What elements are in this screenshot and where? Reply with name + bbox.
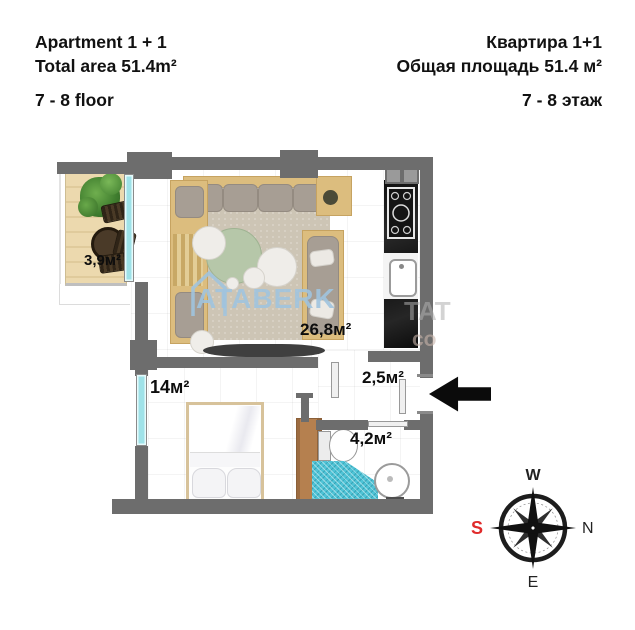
header-english: Apartment 1 + 1 Total area 51.4m² 7 - 8 … (35, 30, 177, 112)
apartment-title-en: Apartment 1 + 1 (35, 30, 177, 54)
bedroom-door-leaf (331, 362, 339, 398)
wall (280, 150, 318, 178)
floor-range-en: 7 - 8 floor (35, 88, 177, 112)
total-area-en: Total area 51.4m² (35, 54, 177, 78)
bed-pillow (192, 468, 226, 498)
tv-console (203, 344, 325, 357)
apartment-title-ru: Квартира 1+1 (397, 30, 603, 54)
sofa-cushion (175, 186, 204, 218)
wall (135, 282, 148, 342)
wall-post-cap (296, 393, 313, 398)
coffee-table-white (192, 226, 226, 260)
watermark-text: ATABERK (196, 283, 336, 315)
sink-drain (399, 264, 404, 269)
building-outline (59, 170, 61, 284)
table-plant (323, 190, 338, 205)
bedroom-window (136, 374, 147, 446)
sink-drain (387, 476, 393, 482)
bathroom-area-label: 4,2м² (350, 429, 392, 449)
bathroom-door-leaf (368, 421, 408, 427)
wall (112, 499, 433, 514)
balcony-window (124, 174, 134, 282)
sofa-cushion (258, 184, 293, 212)
hallway-area-label: 2,5м² (362, 368, 404, 388)
bedroom-area-label: 14м² (150, 377, 189, 398)
compass-east-label: E (528, 574, 539, 591)
wall (135, 446, 148, 501)
compass-west-label: W (525, 467, 541, 484)
wall (57, 162, 128, 174)
watermark-fragment-right: TAT (404, 296, 451, 327)
stove-icon (387, 187, 415, 239)
compass-rose: W N E S (466, 461, 600, 595)
total-area-ru: Общая площадь 51.4 м² (397, 54, 603, 78)
wall-post (301, 396, 309, 422)
header-russian: Квартира 1+1 Общая площадь 51.4 м² 7 - 8… (397, 30, 603, 112)
sofa-cushion (223, 184, 258, 212)
sofa-pillow (309, 248, 335, 267)
bed-sheet-band (190, 452, 260, 467)
watermark-fragment-bottom: co (412, 328, 437, 352)
compass-north-label: N (582, 520, 594, 537)
building-outline (59, 284, 130, 305)
living-room-area-label: 26,8м² (300, 320, 351, 340)
bed-pillow (227, 468, 261, 498)
wall-living-bedroom (148, 357, 318, 368)
wall (420, 412, 433, 504)
floorplan-page: Apartment 1 + 1 Total area 51.4m² 7 - 8 … (0, 0, 635, 630)
entrance-arrow-icon (429, 374, 491, 414)
floor-range-ru: 7 - 8 этаж (397, 88, 603, 112)
wall-hallway (368, 351, 420, 362)
compass-south-label: S (471, 518, 483, 538)
balcony-area-label: 3,9м² (84, 252, 121, 269)
